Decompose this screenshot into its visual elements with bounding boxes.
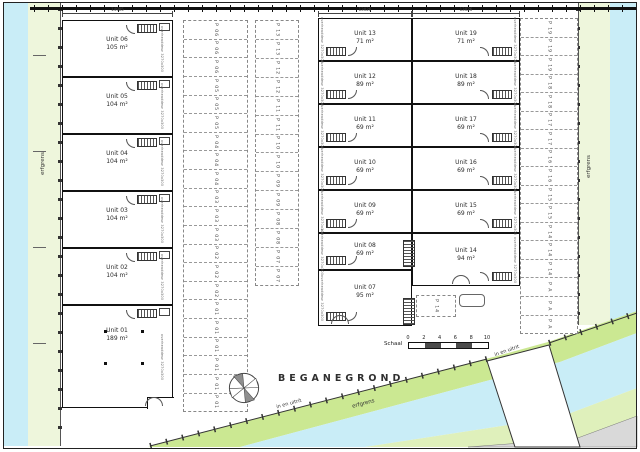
stairs-hatch <box>326 219 346 228</box>
compass-icon <box>228 372 260 404</box>
scale-tick: 4 <box>438 335 441 341</box>
stairs-hatch <box>137 24 157 33</box>
scale-tick: 2 <box>422 335 425 341</box>
stairs-hatch <box>492 272 512 281</box>
stairs-hatch <box>492 133 512 142</box>
parking-stall: P 10 <box>256 153 298 172</box>
door-spec-text: overheaddeur 3270x3000mm <box>320 146 324 192</box>
unit-label: Unit 1169 m² <box>337 116 393 132</box>
parking-stall: P 09 <box>256 191 298 210</box>
scale-segment <box>409 343 425 348</box>
door-spec-text: overheaddeur 3270x3000mm <box>160 334 164 380</box>
parking-stall: P 02 <box>184 263 247 282</box>
unit-label: Unit 1289 m² <box>337 73 393 89</box>
parking-stall: P 01 <box>184 300 247 319</box>
scale-tick: 10 <box>484 335 490 341</box>
parking-stall: P A <box>521 278 577 297</box>
stairs-hatch <box>492 176 512 185</box>
scale-label: Schaal <box>384 341 402 347</box>
unit-label: Unit 02104 m² <box>92 264 142 280</box>
parking-stall-extra: P 14 <box>416 295 456 317</box>
stairs-hatch <box>137 138 157 147</box>
stairs-hatch <box>492 90 512 99</box>
parking-stall: P 19 <box>521 19 577 38</box>
stairs-hatch <box>137 195 157 204</box>
parking-stall: P 13 <box>256 21 298 40</box>
parking-stall: P 15 <box>521 186 577 205</box>
unit-divider-wall <box>413 103 519 105</box>
unit-label: Unit 1494 m² <box>438 247 494 263</box>
parking-stall: P 14 <box>521 241 577 260</box>
stairs-unit14 <box>403 240 415 267</box>
parking-stall: P A <box>521 316 577 334</box>
parking-stall: P 03 <box>184 226 247 245</box>
parking-stall: P 08 <box>256 210 298 229</box>
unit-divider-wall <box>319 232 411 234</box>
column-dot <box>141 362 144 365</box>
unit-divider-wall <box>413 60 519 62</box>
parking-stall: P A <box>521 297 577 316</box>
unit-divider-wall <box>319 269 411 271</box>
parking-stall: P 08 <box>256 229 298 248</box>
door-spec-text: overheaddeur 3270x3000mm <box>513 60 517 106</box>
parking-stall: P 10 <box>256 135 298 154</box>
door-spec-text: overheaddeur 3270x3000mm <box>320 60 324 106</box>
page-title: BEGANEGROND <box>278 373 404 384</box>
parking-stall: P 06 <box>184 58 247 77</box>
door-spec-text: overheaddeur 3270x3000mm <box>513 146 517 192</box>
parking-strip-b: P 13P 13P 12P 12P 11P 11P 10P 10P 09P 09… <box>255 20 299 286</box>
scale-tick: 6 <box>454 335 457 341</box>
scale-segment <box>425 343 441 348</box>
stairs-hatch <box>326 133 346 142</box>
parking-stall: P 09 <box>256 172 298 191</box>
unit-label: Unit 05104 m² <box>92 93 142 109</box>
dimension-right-building-right: 13026 <box>412 13 520 14</box>
parking-stall: P 18 <box>521 75 577 94</box>
parking-stall: P 14 <box>521 260 577 279</box>
unit-label: Unit 1769 m² <box>438 116 494 132</box>
parking-stall: P 04 <box>184 170 247 189</box>
unit-label: Unit 1889 m² <box>438 73 494 89</box>
parking-stall: P 15 <box>521 204 577 223</box>
door-spec-text: overheaddeur 3270x3000mm <box>160 254 164 300</box>
unit-divider-wall <box>319 103 411 105</box>
unit-divider-wall <box>413 146 519 148</box>
column-dot <box>104 362 107 365</box>
scale-segment <box>456 343 472 348</box>
door-spec-text: overheaddeur 3270x3000mm <box>320 229 324 275</box>
parking-stall: P 12 <box>256 59 298 78</box>
unit-label: Unit 0869 m² <box>337 242 393 258</box>
parking-strip-a: P 06P 06P 06P 05P 05P 05P 04P 04P 04P 03… <box>183 20 248 412</box>
parking-stall: P 05 <box>184 77 247 96</box>
parking-stall: P 11 <box>256 97 298 116</box>
parking-stall: P 03 <box>184 207 247 226</box>
scale-tick: 0 <box>406 335 409 341</box>
stairs-hatch <box>492 47 512 56</box>
parking-stall: P 12 <box>256 78 298 97</box>
survey-ticks-left <box>33 55 46 385</box>
unit-label: Unit 06105 m² <box>92 36 142 52</box>
door-spec-text: overheaddeur 3270x3000mm <box>320 103 324 149</box>
door-spec-text: overheaddeur 3270x3000mm <box>160 83 164 129</box>
parking-stall: P 05 <box>184 96 247 115</box>
erfgrens-label-left: erfgrens <box>40 152 46 175</box>
unit-divider-wall <box>413 189 519 191</box>
parking-strip-right: P 19P 19P 19P 18P 18P 17P 17P 16P 16P 15… <box>520 18 578 334</box>
scale-tick: 8 <box>470 335 473 341</box>
parking-stall: P 07 <box>256 267 298 285</box>
unit-divider-wall <box>319 146 411 148</box>
dimension-left-building: 14905 <box>62 13 173 14</box>
parking-stall: P 17 <box>521 112 577 131</box>
parking-stall: P 01 <box>184 319 247 338</box>
unit-label: Unit 0969 m² <box>337 202 393 218</box>
parking-stall: P 14 <box>521 223 577 242</box>
floorplan-drawing: 14905 13026 13026 Unit 06105 m²overheadd… <box>0 0 640 452</box>
unit-divider-wall <box>319 60 411 62</box>
unit-divider-wall <box>63 133 172 135</box>
door-spec-text: overheaddeur 3270x3000mm <box>160 197 164 243</box>
vestibule-box <box>159 308 170 316</box>
door-spec-text: overheaddeur 3270x3000mm <box>513 237 517 283</box>
parking-stall: P 05 <box>184 114 247 133</box>
parking-stall: P 18 <box>521 93 577 112</box>
unit-divider-wall <box>63 247 172 249</box>
unit-divider-wall <box>63 76 172 78</box>
scale-segment <box>441 343 457 348</box>
stairs-hatch <box>326 90 346 99</box>
parking-stall: P 01 <box>184 338 247 357</box>
unit-divider-wall <box>63 304 172 306</box>
unit-label: Unit 1069 m² <box>337 159 393 175</box>
stairs-hatch <box>137 81 157 90</box>
parking-stall-label: P 14 <box>434 299 439 313</box>
unit-label: Unit 1669 m² <box>438 159 494 175</box>
door-spec-text: overheaddeur 3270x3000mm <box>513 17 517 63</box>
unit-label: Unit 04104 m² <box>92 150 142 166</box>
parking-stall: P 06 <box>184 40 247 59</box>
parking-stall: P 13 <box>256 40 298 59</box>
unit-label: Unit 1371 m² <box>337 30 393 46</box>
parking-stall: P 02 <box>184 245 247 264</box>
unit-label: Unit 01189 m² <box>92 327 142 343</box>
door-spec-text: overheaddeur 3270x3000mm <box>160 140 164 186</box>
parking-stall: P 16 <box>521 149 577 168</box>
door-spec-text: overheaddeur 3270x3000mm <box>513 103 517 149</box>
door-spec-text: overheaddeur 3270x3000mm <box>513 189 517 235</box>
stairs-unit07 <box>403 298 415 325</box>
stairs-hatch <box>137 252 157 261</box>
unit-divider-wall <box>413 232 519 234</box>
stairs-hatch <box>326 176 346 185</box>
parking-stall: P 04 <box>184 151 247 170</box>
stairs-hatch <box>492 219 512 228</box>
parking-stall: P 07 <box>256 248 298 267</box>
car-symbol <box>459 294 485 307</box>
parking-stall: P 16 <box>521 167 577 186</box>
stairs-hatch <box>326 47 346 56</box>
parking-stall: P 03 <box>184 189 247 208</box>
dimension-right-building-left: 13026 <box>318 13 412 14</box>
parking-stall: P 06 <box>184 21 247 40</box>
door-spec-text: overheaddeur 3270x3000mm <box>320 17 324 63</box>
door-spec-text: overheaddeur 3270x3000mm <box>320 275 324 321</box>
parking-stall: P 19 <box>521 38 577 57</box>
parking-stall: P 17 <box>521 130 577 149</box>
parking-stall: P 19 <box>521 56 577 75</box>
unit-label: Unit 1569 m² <box>438 202 494 218</box>
unit-label: Unit 03104 m² <box>92 207 142 223</box>
unit-divider-wall <box>319 189 411 191</box>
unit-label: Unit 1971 m² <box>438 30 494 46</box>
unit-divider-wall <box>63 190 172 192</box>
parking-stall: P 11 <box>256 116 298 135</box>
right-building-east-wing <box>412 18 520 286</box>
unit-label: Unit 0795 m² <box>337 284 393 300</box>
parking-stall: P 02 <box>184 282 247 301</box>
parking-stall: P 04 <box>184 133 247 152</box>
stairs-hatch <box>137 309 157 318</box>
erfgrens-label-right: erfgrens <box>586 155 592 178</box>
door-spec-text: overheaddeur 3270x3000mm <box>160 26 164 72</box>
scale-segment <box>472 343 488 348</box>
scale-bar: Schaal 0246810 <box>408 335 488 349</box>
